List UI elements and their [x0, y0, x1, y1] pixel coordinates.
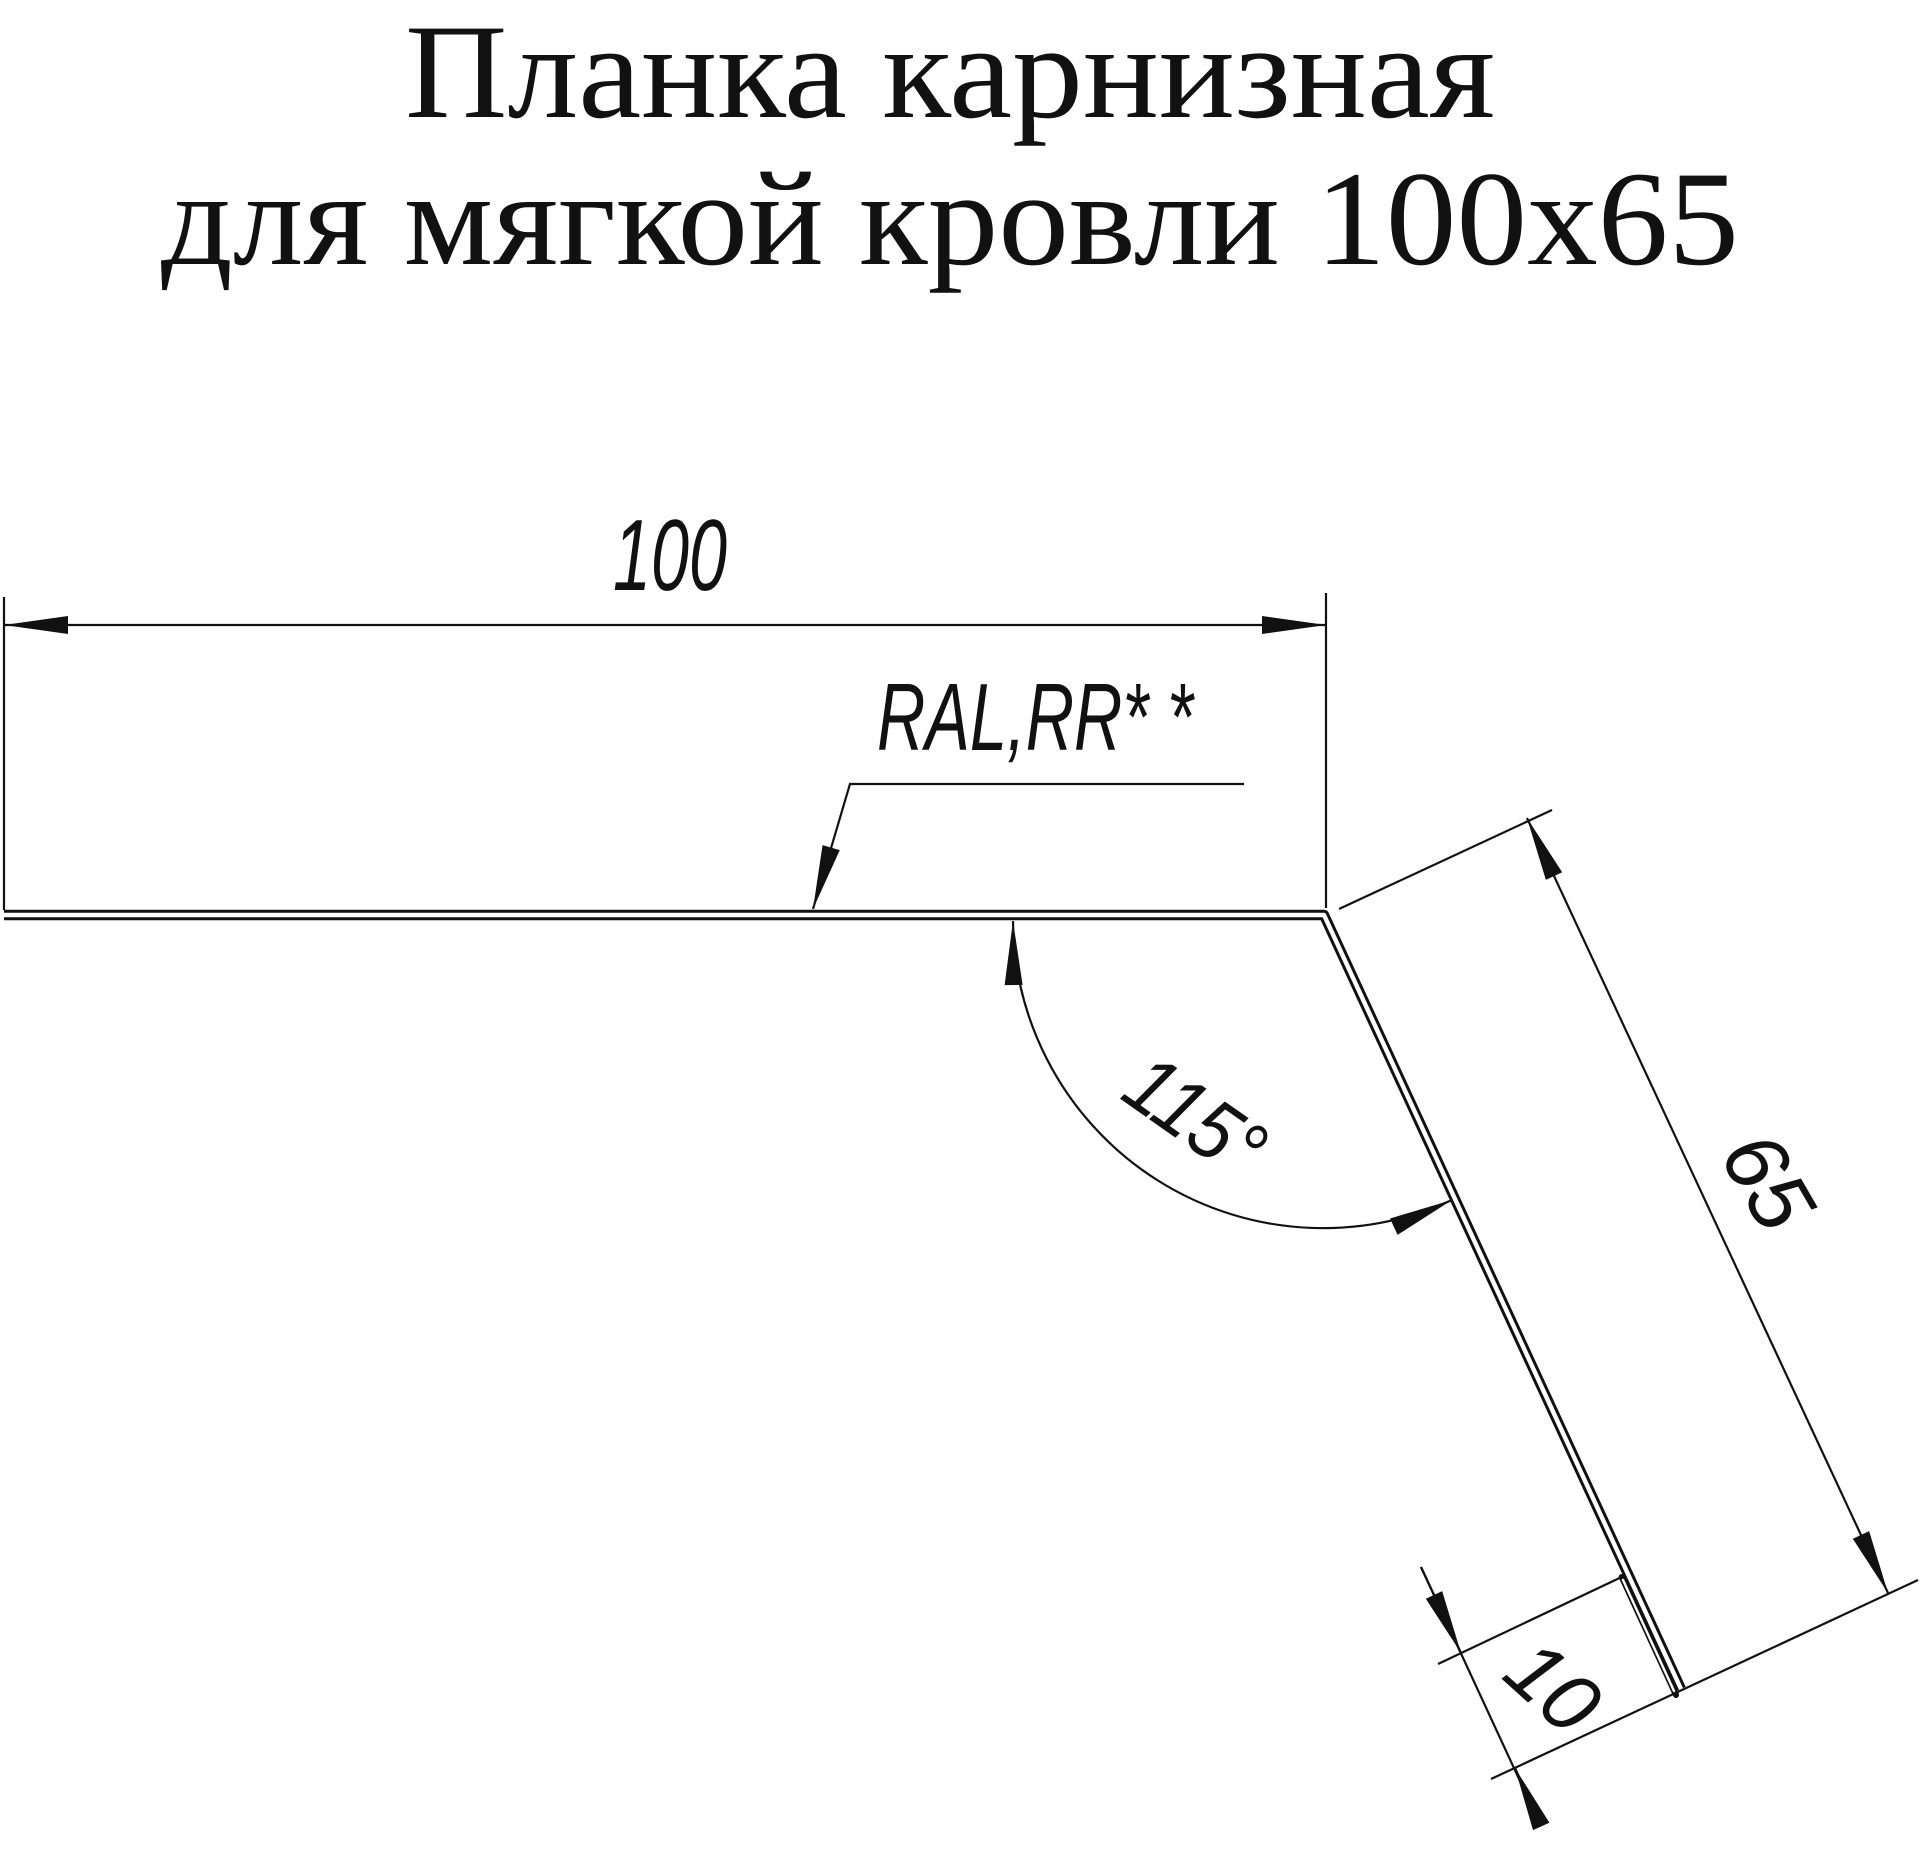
drawing-page: Планка карнизная для мягкой кровли 100x6… [0, 0, 1920, 1862]
dimension-label-width: 100 [613, 500, 727, 612]
eaves-strip-drawing: Планка карнизная для мягкой кровли 100x6… [0, 0, 1920, 1862]
title-line-1: Планка карнизная [405, 0, 1495, 147]
coating-note-label: RAL,RR* * [877, 664, 1195, 771]
title-line-2: для мягкой кровли 100x65 [161, 145, 1739, 294]
